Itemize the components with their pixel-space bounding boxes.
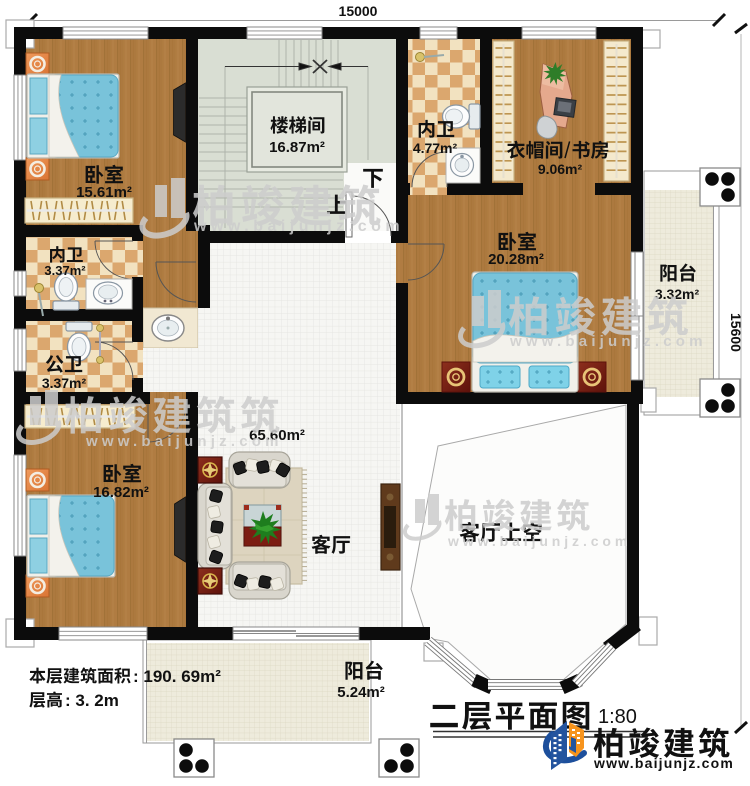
svg-text:15600: 15600 xyxy=(728,313,744,352)
svg-text:5.24m²: 5.24m² xyxy=(337,684,385,701)
svg-text:www.baijunjz.com: www.baijunjz.com xyxy=(85,433,283,450)
svg-text:: 190. 69m²: : 190. 69m² xyxy=(133,667,221,686)
svg-text:www.baijunjz.com: www.baijunjz.com xyxy=(509,333,707,350)
svg-text:4.77m²: 4.77m² xyxy=(413,140,458,156)
svg-text:16.82m²: 16.82m² xyxy=(93,484,149,501)
svg-text:1:80: 1:80 xyxy=(598,706,637,728)
svg-text:3.37m²: 3.37m² xyxy=(44,263,86,278)
svg-text:www.baijunjz.com: www.baijunjz.com xyxy=(593,755,734,771)
svg-text:www.baijunjz.com: www.baijunjz.com xyxy=(447,533,631,549)
svg-text:15.61m²: 15.61m² xyxy=(76,184,132,201)
svg-text:15000: 15000 xyxy=(339,3,378,19)
svg-text:3.32m²: 3.32m² xyxy=(655,286,700,302)
svg-text:3.37m²: 3.37m² xyxy=(42,375,87,391)
svg-text:16.87m²: 16.87m² xyxy=(269,139,325,156)
svg-text:www.baijunjz.com: www.baijunjz.com xyxy=(193,218,404,235)
svg-text:20.28m²: 20.28m² xyxy=(488,251,544,268)
svg-text:9.06m²: 9.06m² xyxy=(538,161,583,177)
svg-text:: 3. 2m: : 3. 2m xyxy=(65,691,119,710)
